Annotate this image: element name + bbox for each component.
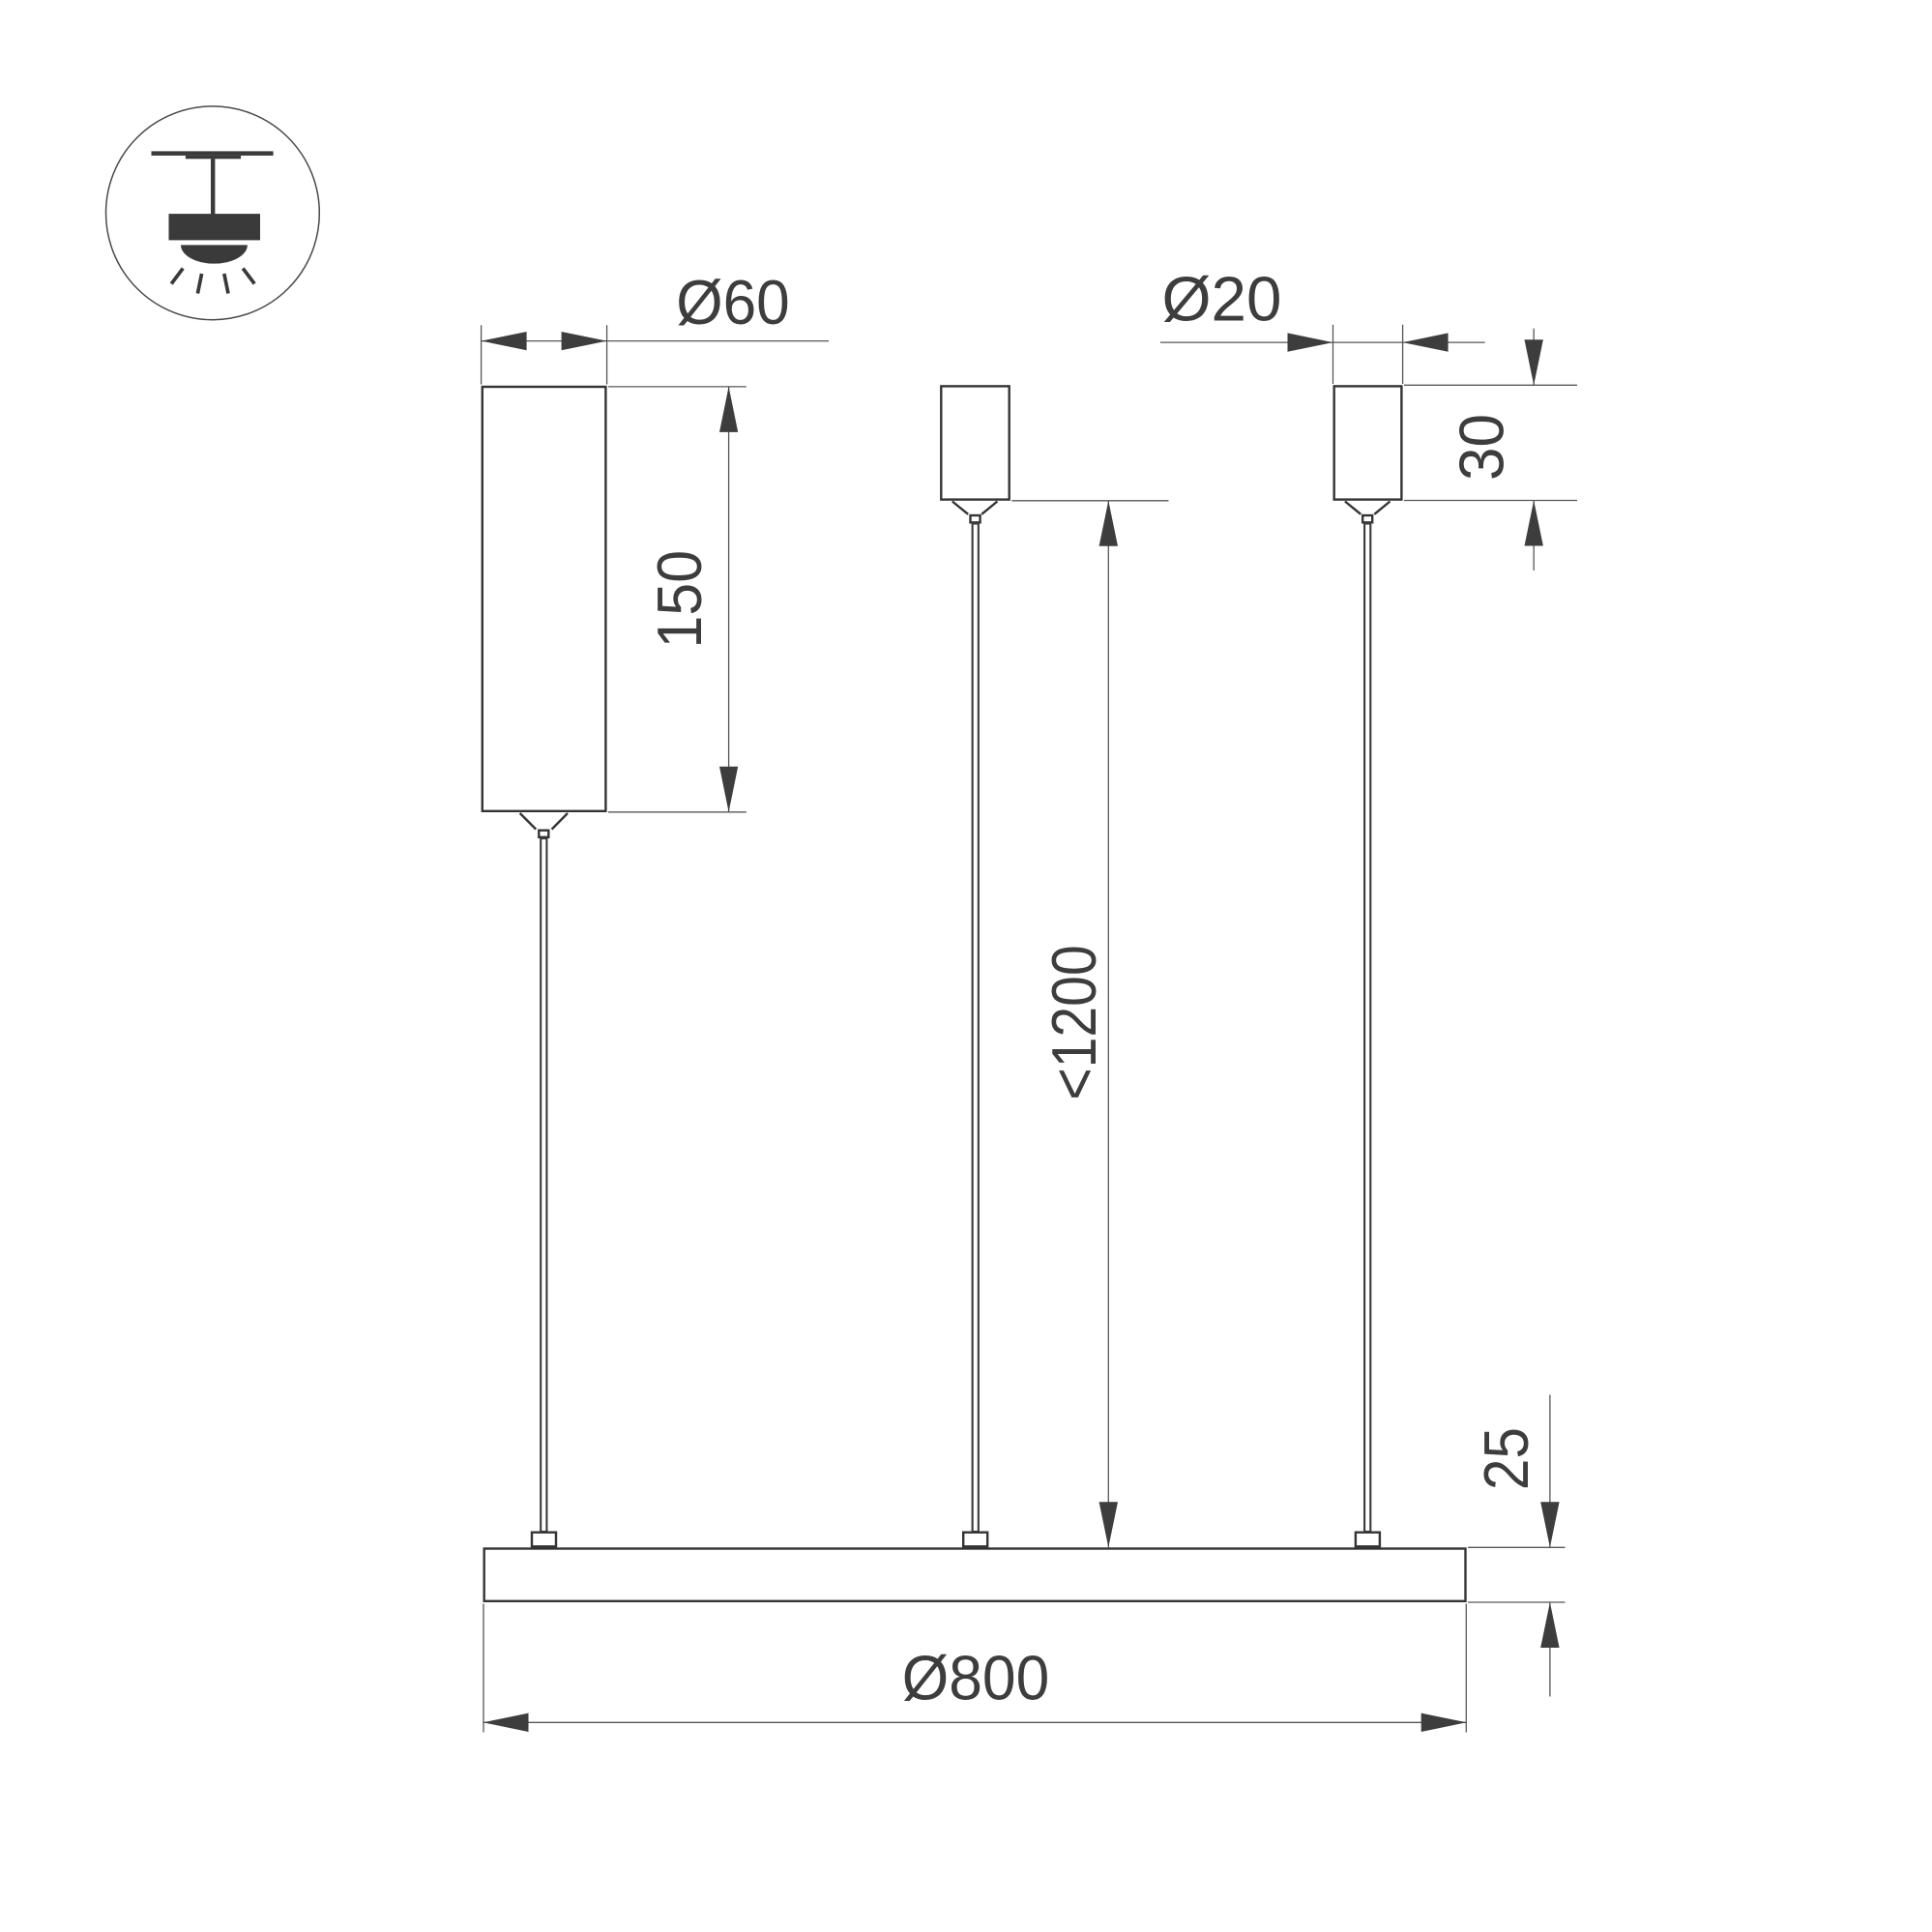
svg-text:Ø60: Ø60 [676,267,790,337]
svg-text:150: 150 [644,550,715,649]
svg-text:<1200: <1200 [1039,945,1109,1100]
svg-text:Ø20: Ø20 [1162,264,1282,335]
svg-text:30: 30 [1446,414,1516,481]
svg-text:25: 25 [1471,1427,1541,1490]
svg-text:Ø800: Ø800 [902,1642,1050,1712]
